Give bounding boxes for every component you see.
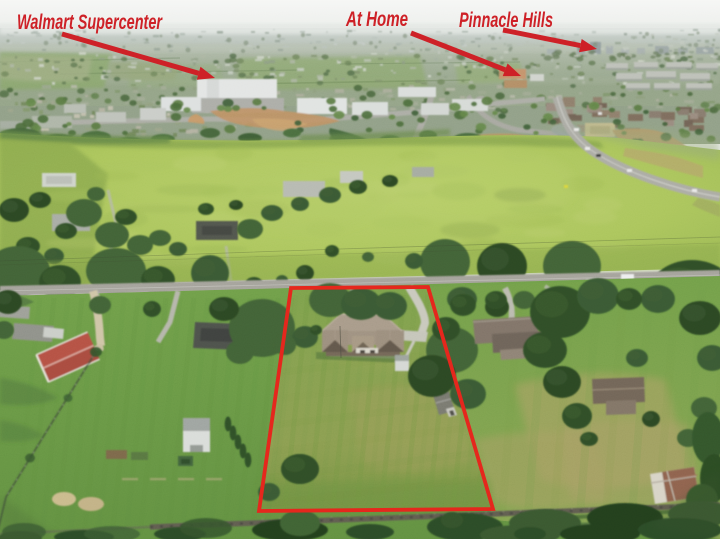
svg-text:Walmart Supercenter: Walmart Supercenter bbox=[17, 11, 163, 34]
svg-text:At Home: At Home bbox=[345, 8, 408, 31]
